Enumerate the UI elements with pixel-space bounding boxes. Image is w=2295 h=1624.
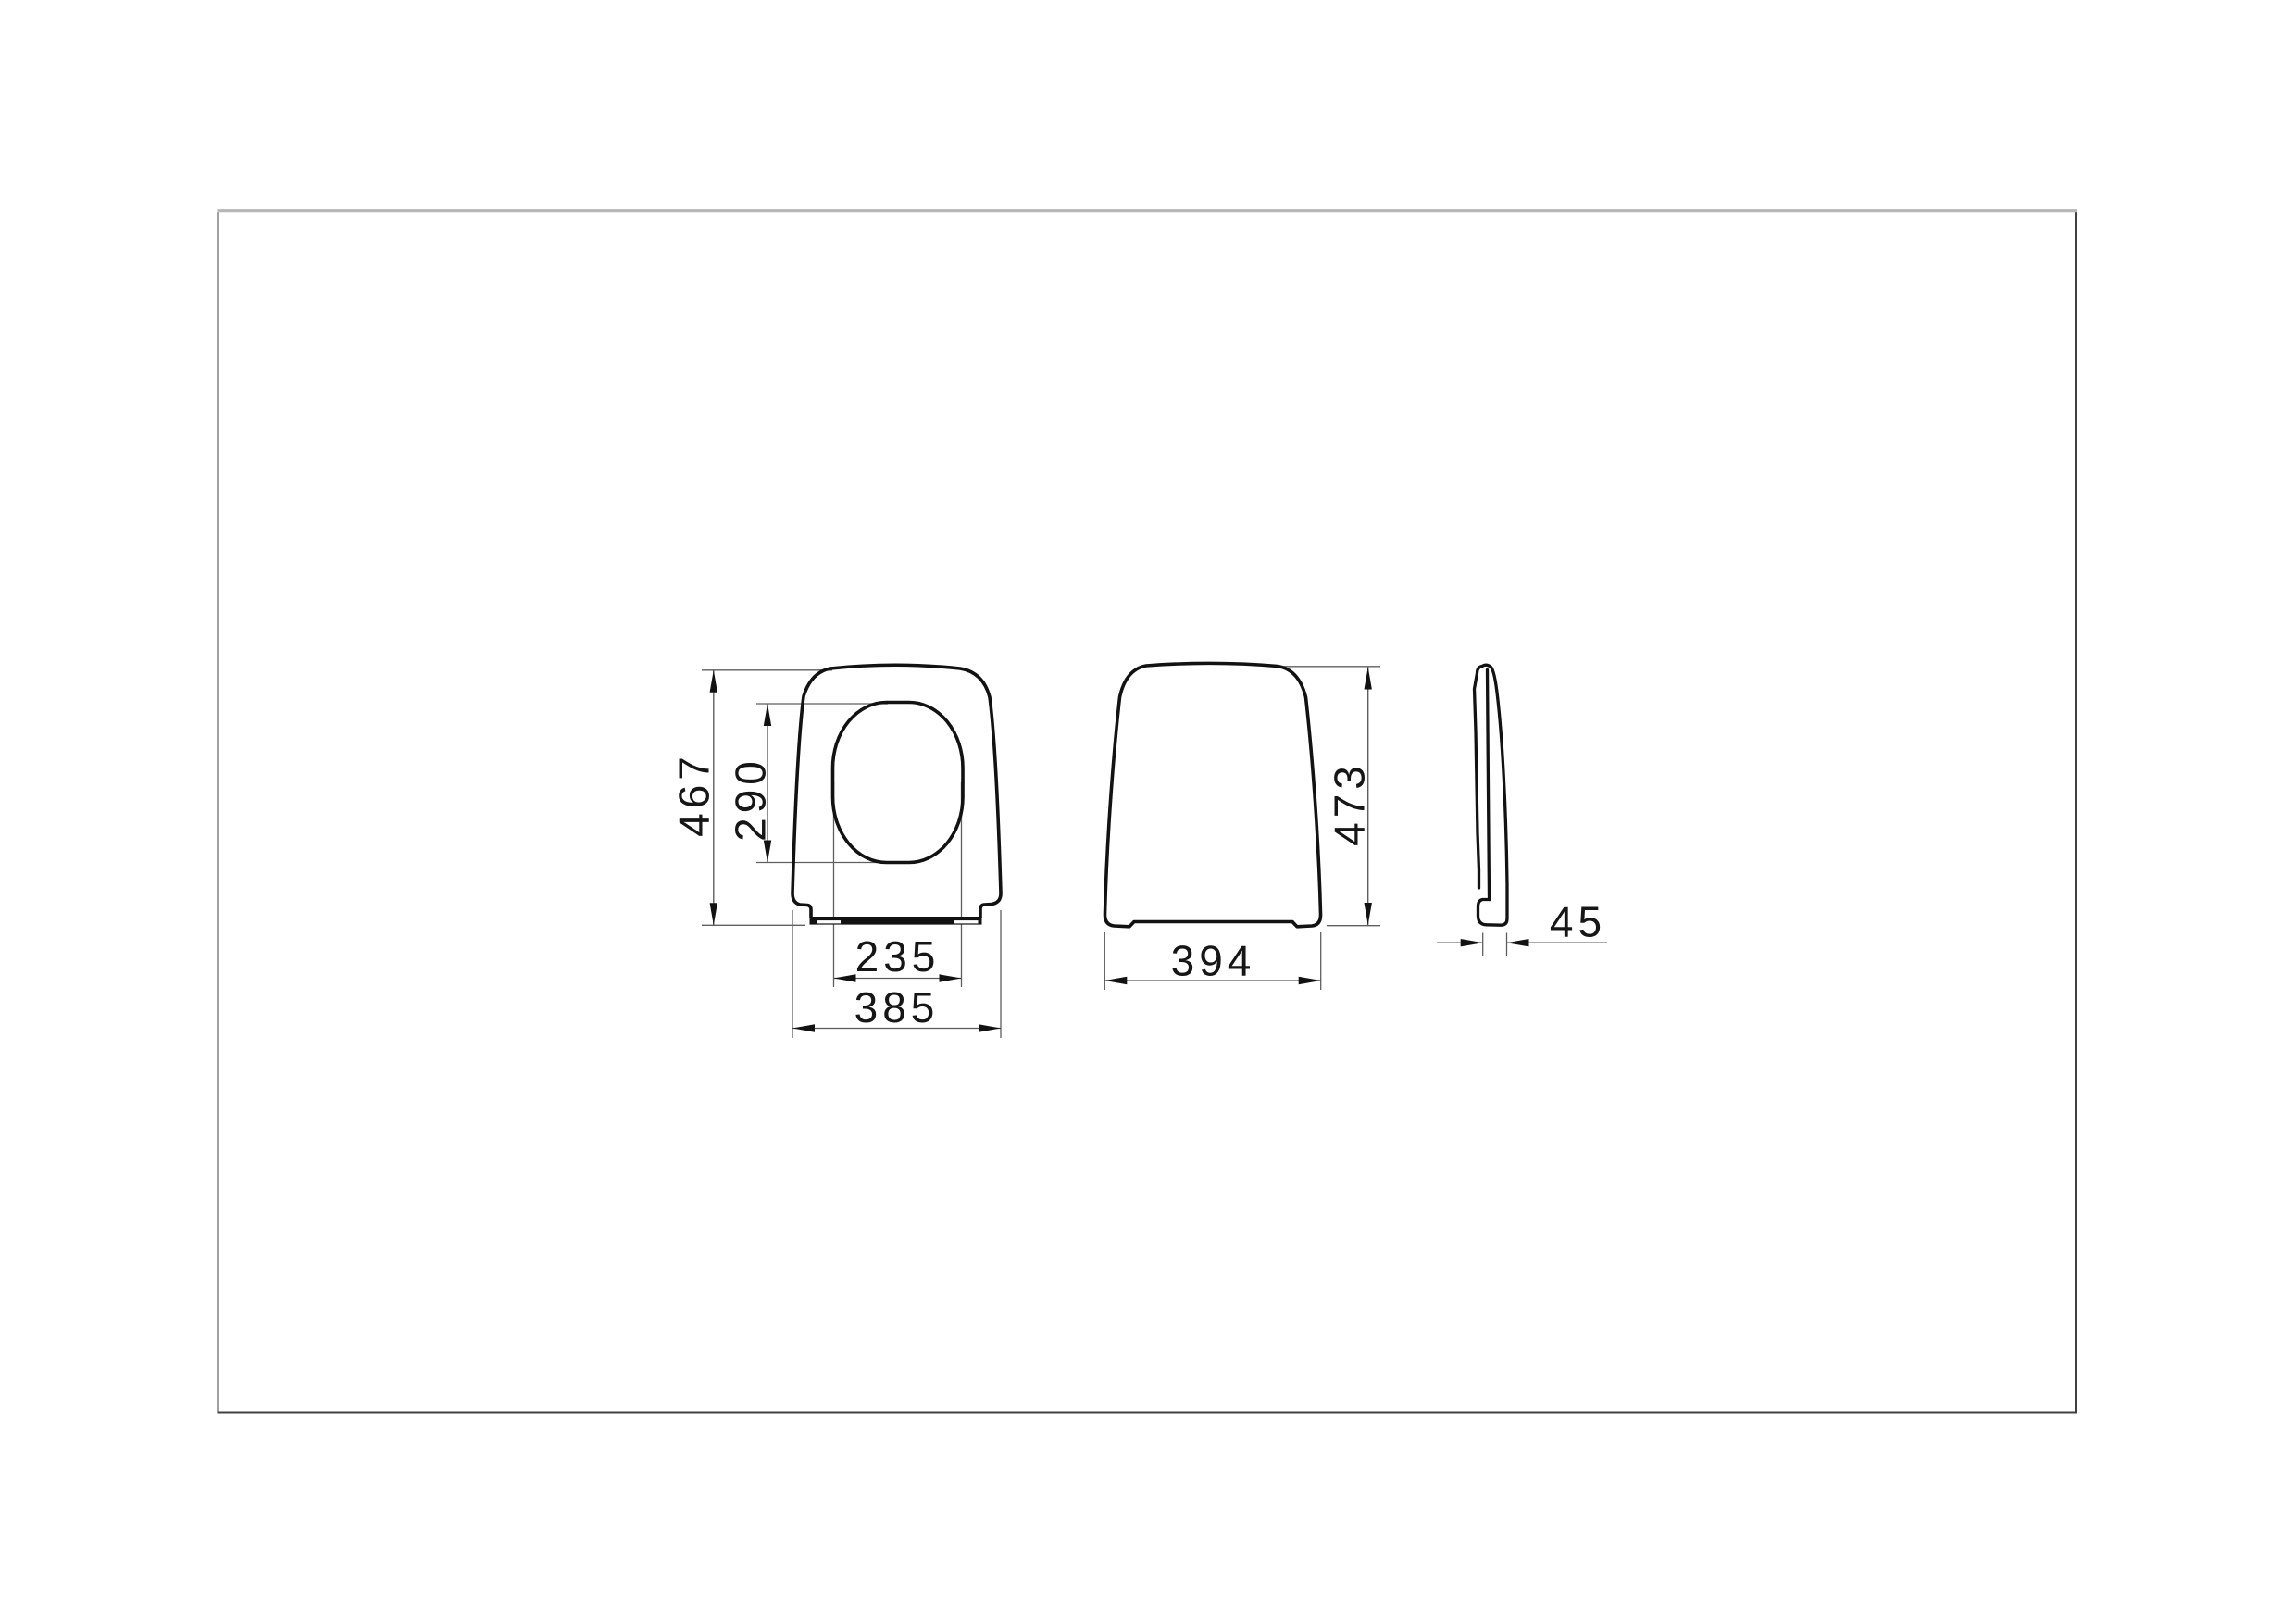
seat-buffer-left (817, 920, 842, 923)
dim-label-cover-overall-length: 473 (1326, 761, 1374, 846)
dim-label-seat-hole-width: 235 (855, 932, 941, 981)
dim-label-cover-overall-width: 394 (1171, 937, 1256, 985)
seat-buffer-right (954, 920, 979, 923)
dim-label-seat-overall-width: 385 (854, 983, 940, 1031)
dim-label-seat-overall-length: 467 (670, 752, 718, 837)
drawing-frame (218, 211, 2077, 1413)
technical-drawing-canvas: 467 290 235 385 473 394 (0, 0, 2295, 1624)
dim-label-side-thickness: 45 (1550, 898, 1606, 946)
drawing-page: 467 290 235 385 473 394 (0, 0, 2295, 1624)
dim-label-seat-hole-length: 290 (727, 756, 775, 842)
